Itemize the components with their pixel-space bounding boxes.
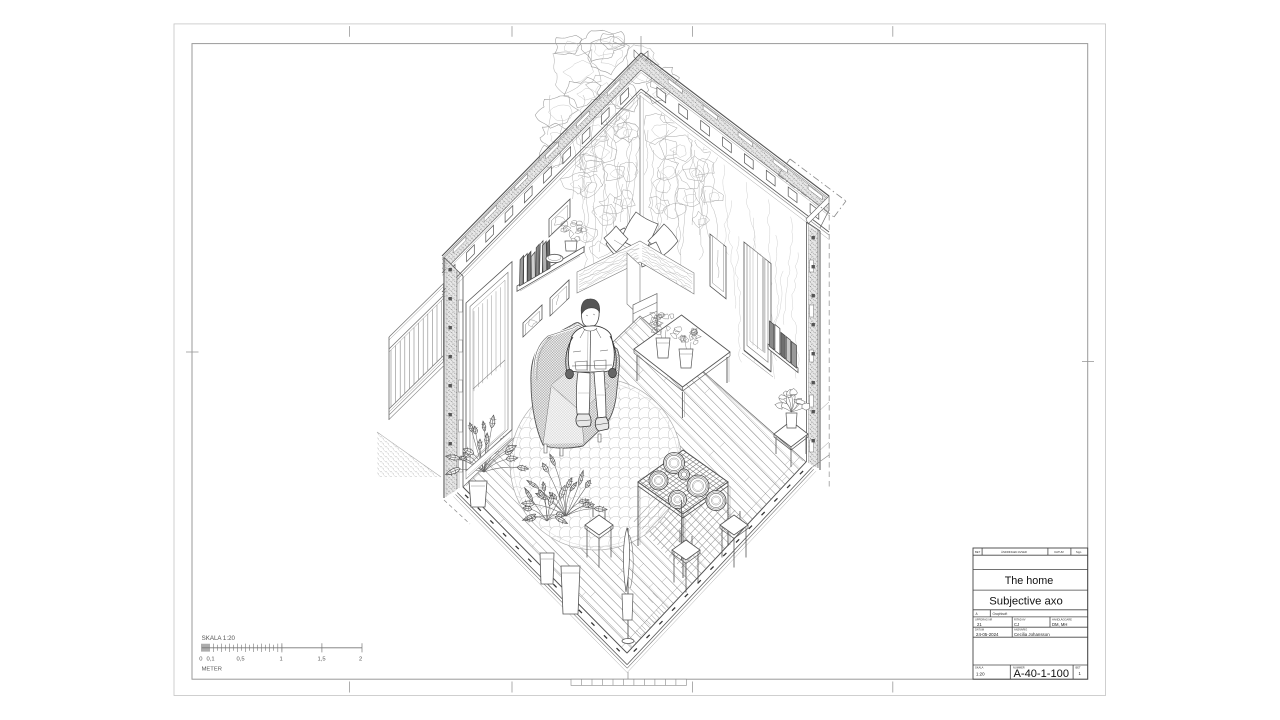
svg-text:ÄNDRINGEN AVSER: ÄNDRINGEN AVSER <box>1001 550 1027 554</box>
svg-text:The home: The home <box>1005 575 1054 587</box>
svg-text:HANDLÄGGARE: HANDLÄGGARE <box>1052 617 1072 621</box>
svg-text:UPPDRAG NR: UPPDRAG NR <box>975 617 992 621</box>
svg-text:1:20: 1:20 <box>976 671 985 676</box>
svg-text:SKALA: SKALA <box>975 666 984 670</box>
svg-text:RITAD AV: RITAD AV <box>1014 617 1026 621</box>
svg-text:DM, MH: DM, MH <box>1052 622 1067 627</box>
svg-text:2: 2 <box>359 657 362 663</box>
svg-text:Sign.: Sign. <box>1076 550 1082 554</box>
svg-text:BET: BET <box>1076 666 1081 670</box>
svg-text:Graphisoft: Graphisoft <box>993 612 1008 616</box>
svg-text:21: 21 <box>977 622 982 627</box>
svg-text:METER: METER <box>202 667 222 673</box>
svg-text:DATUM: DATUM <box>1054 550 1064 554</box>
svg-text:0,5: 0,5 <box>237 657 245 663</box>
svg-text:CJ: CJ <box>1014 622 1019 627</box>
svg-text:Subjective axo: Subjective axo <box>989 596 1062 608</box>
svg-text:1,5: 1,5 <box>318 657 326 663</box>
svg-text:SKALA 1:20: SKALA 1:20 <box>202 635 236 642</box>
svg-text:0: 0 <box>199 657 202 663</box>
svg-text:A-40-1-100: A-40-1-100 <box>1014 668 1070 680</box>
svg-text:BET: BET <box>975 550 981 554</box>
svg-text:0,1: 0,1 <box>207 657 215 663</box>
svg-text:Cecilia Johansson: Cecilia Johansson <box>1014 632 1050 637</box>
svg-text:24-05-2024: 24-05-2024 <box>976 632 999 637</box>
svg-text:1: 1 <box>280 657 283 663</box>
